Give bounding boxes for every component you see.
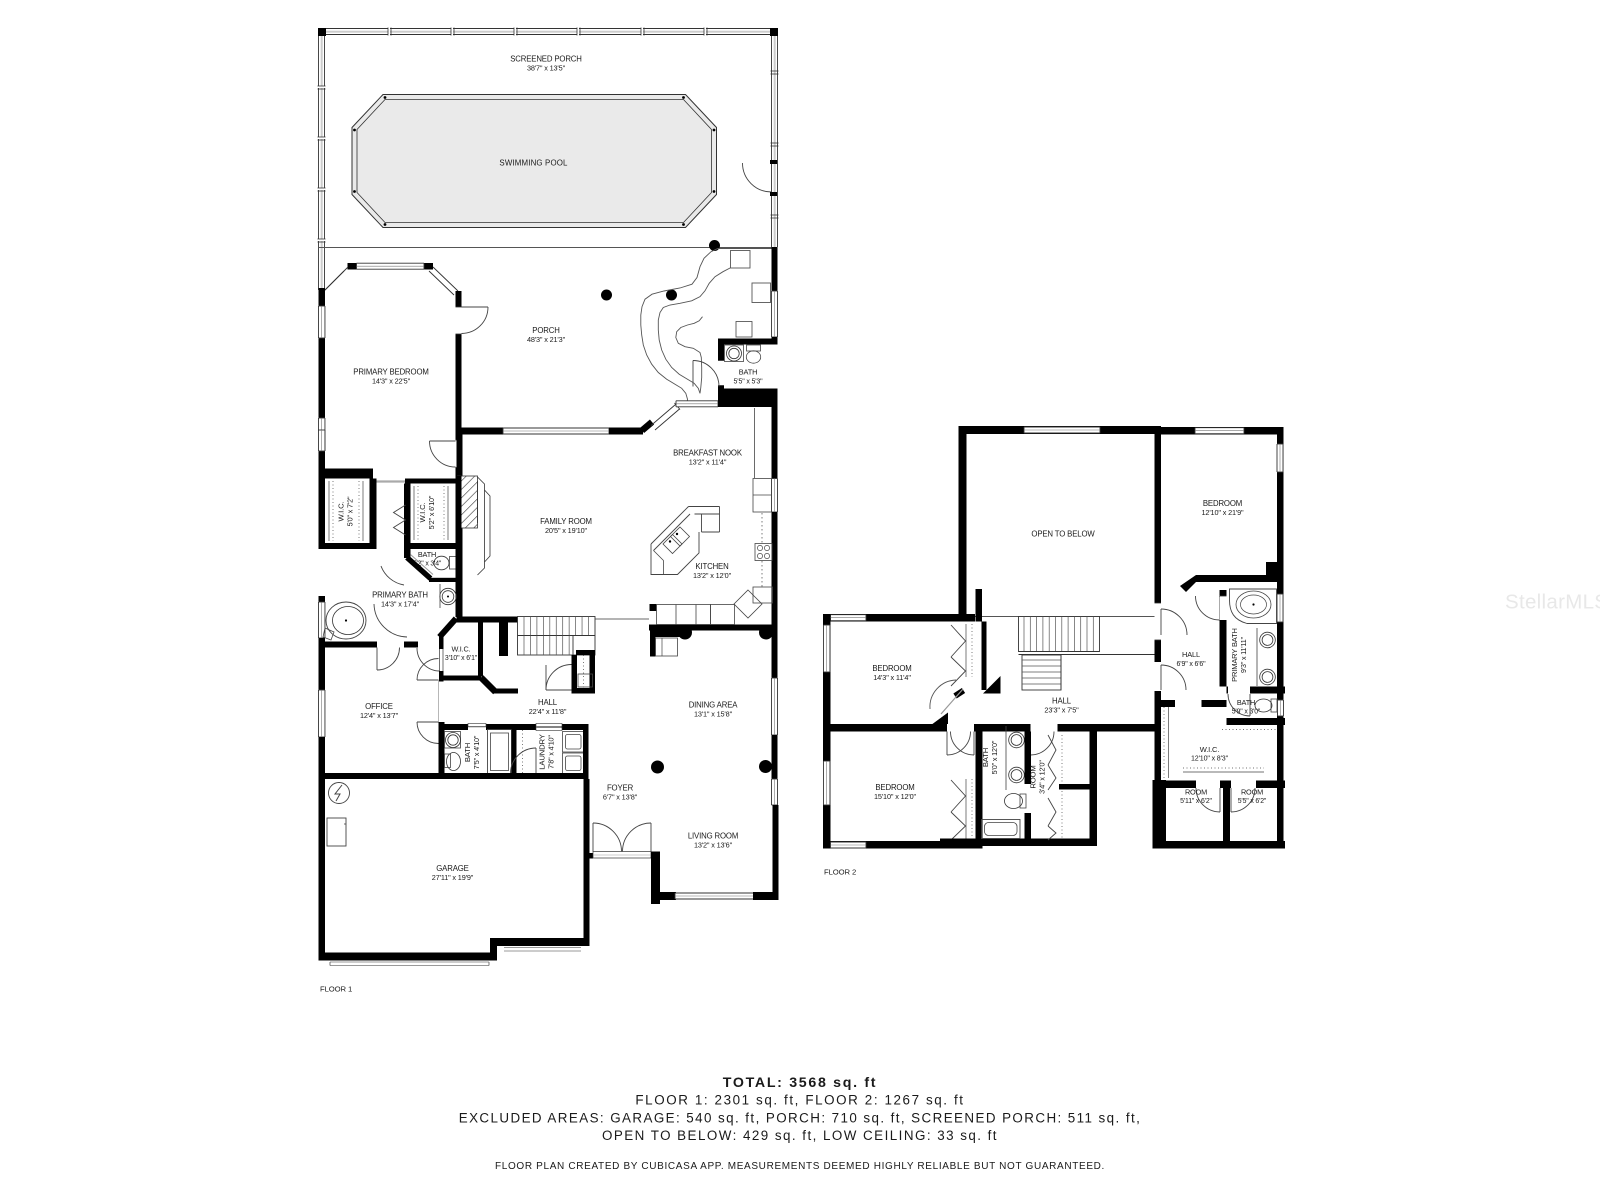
svg-text:PRIMARY BATH: PRIMARY BATH	[1230, 628, 1239, 682]
svg-text:GARAGE: GARAGE	[436, 864, 468, 873]
svg-text:ROOM: ROOM	[1029, 765, 1038, 788]
svg-text:W.I.C.: W.I.C.	[1200, 745, 1220, 754]
svg-text:5'0" x 12'0": 5'0" x 12'0"	[990, 740, 999, 774]
svg-text:HALL: HALL	[538, 698, 558, 707]
svg-text:HALL: HALL	[1182, 650, 1200, 659]
svg-text:BATH: BATH	[463, 743, 472, 762]
svg-text:6'7" x 13'8": 6'7" x 13'8"	[603, 793, 638, 802]
svg-text:13'1" x 15'8": 13'1" x 15'8"	[694, 710, 733, 719]
svg-text:SCREENED PORCH: SCREENED PORCH	[510, 55, 582, 64]
svg-text:12'10" x 21'9": 12'10" x 21'9"	[1202, 508, 1245, 517]
svg-text:FAMILY ROOM: FAMILY ROOM	[540, 517, 592, 526]
svg-text:PRIMARY BATH: PRIMARY BATH	[372, 591, 428, 600]
svg-text:3'4" x 12'0": 3'4" x 12'0"	[1037, 760, 1046, 794]
svg-text:BEDROOM: BEDROOM	[875, 783, 914, 792]
svg-text:13'2" x 11'4": 13'2" x 11'4"	[689, 458, 727, 467]
svg-text:TOTAL: 3568 sq. ft: TOTAL: 3568 sq. ft	[723, 1075, 877, 1091]
svg-text:5'0" x 7'2": 5'0" x 7'2"	[345, 496, 354, 526]
svg-text:FLOOR 1: FLOOR 1	[320, 985, 352, 994]
svg-text:FLOOR 2: FLOOR 2	[824, 868, 856, 877]
svg-text:BATH: BATH	[418, 550, 436, 559]
svg-text:14'3" x 11'4": 14'3" x 11'4"	[873, 673, 911, 682]
svg-text:FLOOR 1: 2301 sq. ft, FLOOR 2:: FLOOR 1: 2301 sq. ft, FLOOR 2: 1267 sq. …	[635, 1093, 964, 1108]
svg-text:BEDROOM: BEDROOM	[872, 664, 911, 673]
svg-text:14'3" x 17'4": 14'3" x 17'4"	[381, 600, 420, 609]
svg-text:13'2" x 13'6": 13'2" x 13'6"	[694, 841, 733, 850]
svg-text:OPEN TO BELOW: OPEN TO BELOW	[1031, 530, 1095, 539]
svg-text:FOYER: FOYER	[607, 784, 634, 793]
svg-text:OFFICE: OFFICE	[365, 702, 393, 711]
svg-text:BREAKFAST NOOK: BREAKFAST NOOK	[673, 449, 743, 458]
svg-text:KITCHEN: KITCHEN	[695, 562, 728, 571]
svg-text:20'5" x 19'10": 20'5" x 19'10"	[545, 526, 588, 535]
svg-text:5'11" x 6'2": 5'11" x 6'2"	[1180, 798, 1212, 805]
svg-text:PRIMARY BEDROOM: PRIMARY BEDROOM	[353, 368, 428, 377]
svg-text:7'5" x 4'10": 7'5" x 4'10"	[472, 735, 481, 769]
svg-text:BEDROOM: BEDROOM	[1203, 499, 1242, 508]
svg-text:FLOOR PLAN CREATED BY CUBICASA: FLOOR PLAN CREATED BY CUBICASA APP. MEAS…	[495, 1161, 1105, 1172]
svg-text:W.I.C.: W.I.C.	[452, 645, 471, 654]
svg-text:7'8" x 4'10": 7'8" x 4'10"	[546, 735, 555, 769]
svg-text:12'4" x 13'7": 12'4" x 13'7"	[360, 711, 399, 720]
svg-text:12'10" x 8'3": 12'10" x 8'3"	[1191, 755, 1229, 763]
svg-text:38'7" x 13'5": 38'7" x 13'5"	[527, 64, 566, 73]
svg-text:EXCLUDED AREAS: GARAGE: 540 sq: EXCLUDED AREAS: GARAGE: 540 sq. ft, PORC…	[459, 1110, 1142, 1125]
svg-text:StellarMLS: StellarMLS	[1505, 591, 1600, 614]
svg-text:W.I.C.: W.I.C.	[337, 501, 346, 521]
svg-text:5'5" x 5'3": 5'5" x 5'3"	[734, 378, 764, 385]
svg-text:6'9" x 6'6": 6'9" x 6'6"	[1177, 661, 1207, 668]
svg-text:13'2" x 12'0": 13'2" x 12'0"	[693, 571, 732, 580]
svg-text:15'10" x 12'0": 15'10" x 12'0"	[874, 792, 917, 801]
svg-text:23'3" x 7'5": 23'3" x 7'5"	[1044, 706, 1079, 715]
svg-text:5'2" x 6'10": 5'2" x 6'10"	[427, 495, 436, 529]
svg-text:5'5" x 6'2": 5'5" x 6'2"	[1238, 798, 1267, 805]
svg-text:27'11" x 19'9": 27'11" x 19'9"	[432, 873, 474, 882]
svg-text:3'10" x 6'1": 3'10" x 6'1"	[445, 655, 478, 662]
svg-text:DINING AREA: DINING AREA	[689, 701, 739, 710]
svg-text:HALL: HALL	[1052, 697, 1072, 706]
svg-text:ROOM: ROOM	[1241, 788, 1263, 797]
svg-text:9'3" x 11'11": 9'3" x 11'11"	[1240, 636, 1248, 673]
svg-text:48'3" x 21'3": 48'3" x 21'3"	[527, 335, 566, 344]
svg-text:BATH: BATH	[981, 748, 990, 767]
svg-text:BATH: BATH	[1237, 698, 1255, 707]
svg-text:W.I.C.: W.I.C.	[418, 502, 427, 522]
svg-text:ROOM: ROOM	[1185, 788, 1207, 797]
svg-text:22'4" x 11'8": 22'4" x 11'8"	[529, 707, 567, 716]
svg-text:PORCH: PORCH	[532, 326, 559, 335]
svg-text:14'3" x 22'5": 14'3" x 22'5"	[372, 377, 411, 386]
svg-text:LAUNDRY: LAUNDRY	[538, 734, 547, 770]
svg-text:OPEN TO BELOW: 429 sq. ft, LOW: OPEN TO BELOW: 429 sq. ft, LOW CEILING: …	[602, 1128, 998, 1143]
svg-text:LIVING ROOM: LIVING ROOM	[688, 832, 738, 841]
svg-text:BATH: BATH	[739, 368, 758, 377]
svg-text:SWIMMING POOL: SWIMMING POOL	[499, 159, 568, 168]
